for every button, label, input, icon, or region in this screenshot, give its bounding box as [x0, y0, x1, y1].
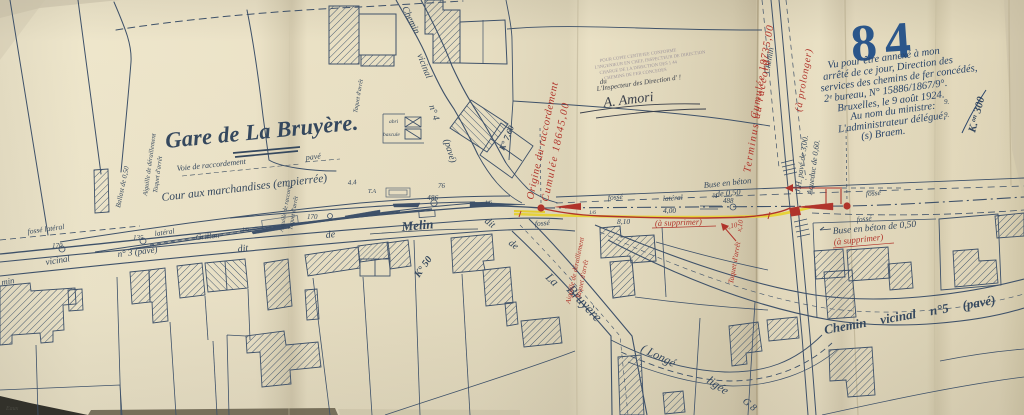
svg-text:8,10: 8,10: [617, 217, 630, 226]
svg-text:4,00: 4,00: [663, 206, 676, 215]
svg-text:latéral: latéral: [663, 193, 684, 203]
svg-text:fossé: fossé: [608, 192, 624, 202]
svg-text:1/6: 1/6: [242, 227, 249, 233]
svg-text:76: 76: [438, 182, 446, 190]
svg-text:fossé: fossé: [856, 213, 873, 224]
svg-text:488: 488: [723, 197, 734, 205]
svg-text:fossé: fossé: [535, 218, 551, 228]
svg-text:fossé: fossé: [866, 188, 882, 198]
svg-text:Eaux: Eaux: [5, 406, 19, 412]
svg-text:min: min: [1, 275, 15, 287]
svg-text:170: 170: [307, 213, 318, 221]
svg-text:bascule: bascule: [383, 132, 400, 138]
svg-text:pavé: pavé: [304, 151, 321, 162]
svg-text:T.A: T.A: [368, 189, 376, 195]
svg-text:1/6: 1/6: [485, 200, 492, 206]
svg-text:abri: abri: [389, 119, 399, 125]
svg-text:(à supprimer): (à supprimer): [655, 216, 702, 228]
svg-text:1/6: 1/6: [589, 210, 596, 216]
svg-text:dit: dit: [237, 243, 249, 255]
svg-text:135: 135: [133, 234, 144, 242]
svg-text:170: 170: [52, 242, 63, 250]
svg-text:4.4: 4.4: [347, 178, 357, 187]
svg-text:¾: ¾: [712, 192, 718, 200]
svg-text:486: 486: [427, 193, 439, 202]
svg-text:de: de: [325, 229, 336, 241]
